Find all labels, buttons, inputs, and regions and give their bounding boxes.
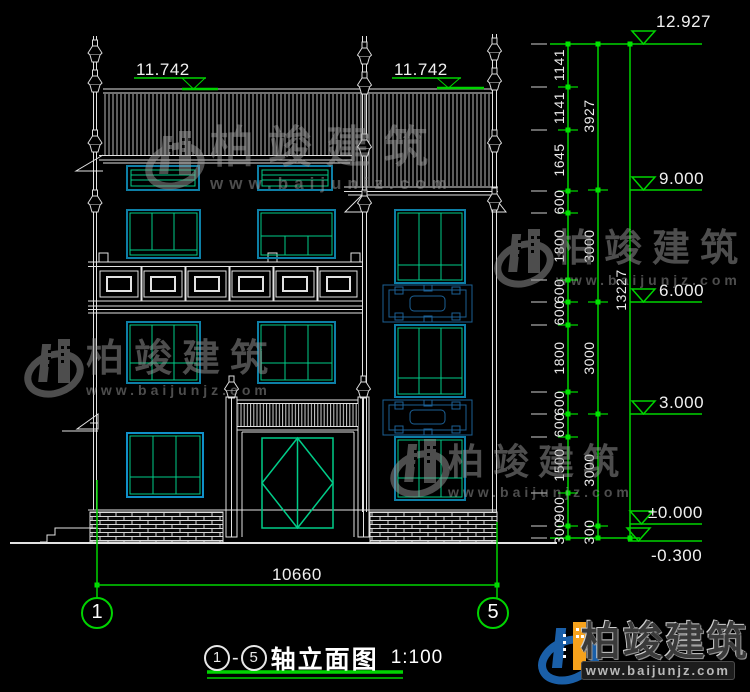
watermark-site: www.baijunjz.com (86, 382, 278, 398)
watermark: 柏竣建筑 www.baijunjz.com (210, 126, 453, 194)
title-axis-to: 5 (241, 645, 267, 671)
brand-name: 柏竣建筑 (581, 620, 749, 664)
eave-level-label: 11.742 (136, 60, 190, 80)
window-3f-right (258, 210, 335, 258)
watermark-brand: 柏竣建筑 (448, 444, 633, 480)
title-scale: 1:100 (391, 647, 444, 669)
entrance-door (262, 438, 333, 528)
brand-logo-spacer (538, 616, 575, 686)
cad-elevation-canvas: 11.742 11.742 12.927 9.000 6.000 3.000 ±… (0, 0, 750, 692)
watermark-site: www.baijunjz.com (210, 174, 453, 194)
dim-label: 3000 (581, 328, 597, 388)
dim-label: 300 (581, 502, 597, 562)
eave-level-label: 11.742 (394, 60, 448, 80)
tower-panel-lower (383, 400, 472, 435)
level-label: 3.000 (659, 393, 704, 413)
drawing-title: 1 - 5 轴立面图 1:100 (204, 640, 443, 676)
entry-steps (40, 528, 97, 542)
watermark-site: www.baijunjz.com (448, 484, 633, 500)
brick-base (10, 510, 557, 543)
dim-label: 3927 (581, 86, 597, 146)
watermark-brand: 柏竣建筑 (86, 340, 278, 378)
level-label: 12.927 (656, 12, 711, 32)
left-side-eave (62, 414, 98, 431)
level-label: -0.300 (651, 546, 702, 566)
watermark-brand: 柏竣建筑 (210, 126, 453, 170)
watermark-logo-icon (22, 339, 86, 401)
watermark-site: www.baijunjz.com (556, 272, 748, 288)
title-axis-from: 1 (204, 645, 230, 671)
dim-label: 1141 (551, 78, 567, 138)
watermark: 柏竣建筑 www.baijunjz.com (556, 230, 748, 288)
watermark: 柏竣建筑 www.baijunjz.com (448, 444, 633, 500)
level-label: ±0.000 (648, 503, 703, 523)
tower-window-top (395, 210, 465, 283)
axis-lines (82, 480, 508, 628)
brand-site: www.baijunjz.com (581, 661, 735, 680)
tower-window-middle (395, 325, 465, 397)
watermark-brand: 柏竣建筑 (556, 230, 748, 268)
level-label: 9.000 (659, 169, 704, 189)
brand-logo: 柏竣建筑 www.baijunjz.com (538, 616, 750, 686)
axis-bubble-5: 5 (478, 601, 508, 624)
title-dash: - (232, 647, 239, 670)
watermark-logo-icon (492, 229, 556, 291)
axis-bubble-1: 1 (82, 601, 112, 624)
watermark: 柏竣建筑 www.baijunjz.com (86, 340, 278, 398)
tower-panel-upper (383, 285, 472, 322)
balcony-railing (88, 253, 362, 313)
window-1f-left (127, 433, 203, 497)
window-3f-left (127, 210, 200, 258)
dim-label: 300 (551, 502, 567, 562)
width-dim-label: 10660 (272, 565, 322, 585)
title-text: 轴立面图 (271, 640, 379, 676)
